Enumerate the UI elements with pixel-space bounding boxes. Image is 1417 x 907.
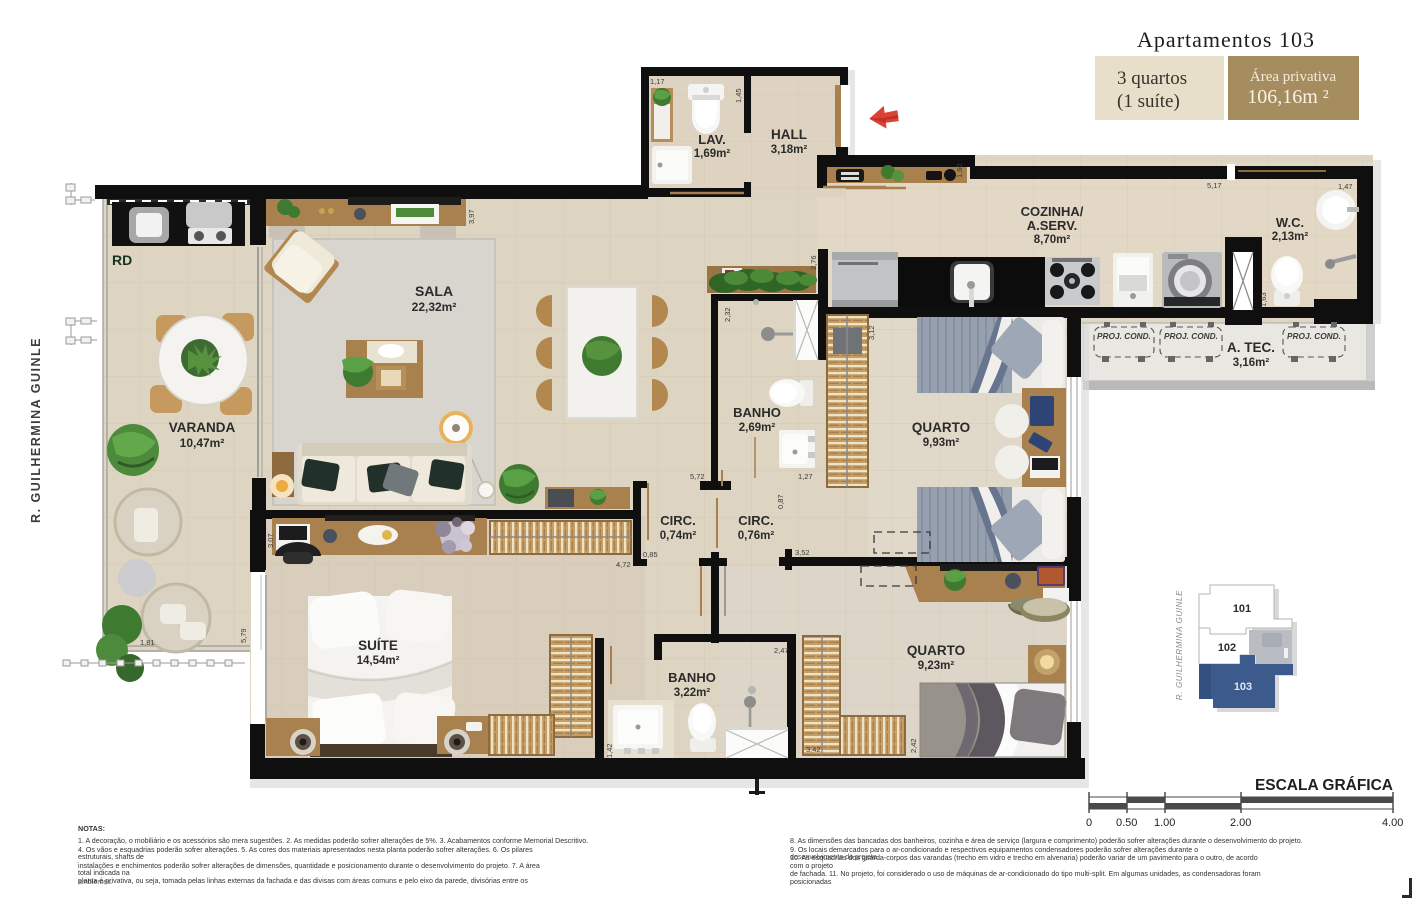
svg-text:LAV.: LAV. — [698, 132, 725, 147]
svg-text:2.00: 2.00 — [1230, 817, 1251, 829]
svg-text:QUARTO: QUARTO — [912, 420, 970, 435]
svg-text:COZINHA/: COZINHA/ — [1021, 204, 1084, 219]
svg-text:101: 101 — [1233, 603, 1251, 615]
svg-text:0,85: 0,85 — [643, 550, 658, 559]
svg-text:3,22m²: 3,22m² — [674, 687, 711, 699]
svg-text:posicionadas: posicionadas — [790, 878, 832, 886]
svg-text:1,69m²: 1,69m² — [694, 148, 731, 160]
svg-text:Apartamentos 103: Apartamentos 103 — [1137, 27, 1315, 52]
svg-text:VARANDA: VARANDA — [169, 420, 236, 435]
svg-text:de fachada. 11. No projeto, fo: de fachada. 11. No projeto, foi consider… — [790, 870, 1261, 878]
svg-text:9,93m²: 9,93m² — [923, 437, 960, 449]
svg-text:0,74m²: 0,74m² — [660, 530, 697, 542]
svg-text:R. GUILHERMINA GUINLE: R. GUILHERMINA GUINLE — [1175, 590, 1184, 700]
svg-text:1,27: 1,27 — [798, 472, 813, 481]
svg-text:103: 103 — [1234, 681, 1252, 693]
svg-text:0.50: 0.50 — [1116, 817, 1137, 829]
svg-text:0: 0 — [1086, 817, 1092, 829]
svg-text:total indicada na: total indicada na — [78, 869, 130, 877]
svg-text:CIRC.: CIRC. — [738, 513, 773, 528]
svg-text:3,42: 3,42 — [806, 745, 821, 754]
svg-text:estruturais, shafts de: estruturais, shafts de — [78, 853, 144, 861]
svg-text:0,87: 0,87 — [776, 494, 785, 509]
svg-text:HALL: HALL — [771, 127, 807, 142]
svg-text:PROJ. COND.: PROJ. COND. — [1287, 331, 1341, 341]
svg-text:W.C.: W.C. — [1276, 215, 1304, 230]
svg-text:5,17: 5,17 — [1207, 181, 1222, 190]
svg-text:ambientes.: ambientes. — [78, 878, 113, 886]
svg-text:1,63: 1,63 — [1259, 292, 1268, 307]
svg-text:QUARTO: QUARTO — [907, 643, 965, 658]
svg-text:1,17: 1,17 — [650, 77, 665, 86]
svg-text:3,12: 3,12 — [867, 325, 876, 340]
svg-text:1,60: 1,60 — [955, 163, 964, 178]
svg-text:PROJ. COND.: PROJ. COND. — [1097, 331, 1151, 341]
svg-text:1. A decoração, o mobiliário e: 1. A decoração, o mobiliário e os acessó… — [78, 837, 588, 845]
svg-text:1,45: 1,45 — [734, 88, 743, 103]
svg-text:R. GUILHERMINA GUINLE: R. GUILHERMINA GUINLE — [29, 337, 43, 523]
svg-text:SUÍTE: SUÍTE — [358, 638, 398, 653]
svg-text:2,13m²: 2,13m² — [1272, 231, 1309, 243]
svg-text:BANHO: BANHO — [733, 405, 781, 420]
svg-text:BANHO: BANHO — [668, 670, 716, 685]
svg-text:3 quartos: 3 quartos — [1117, 68, 1187, 89]
svg-text:Área privativa: Área privativa — [1250, 68, 1337, 85]
svg-text:(1 suíte): (1 suíte) — [1117, 91, 1180, 112]
svg-text:desenvolvimento do projeto.: desenvolvimento do projeto. — [790, 853, 879, 861]
svg-text:8. As dimensões das bancadas d: 8. As dimensões das bancadas dos banheir… — [790, 837, 1303, 845]
svg-text:planta é privativa, ou seja, t: planta é privativa, ou seja, tomada pela… — [78, 877, 528, 885]
svg-text:2,47: 2,47 — [774, 646, 789, 655]
svg-text:2,32: 2,32 — [723, 307, 732, 322]
svg-text:PROJ. COND.: PROJ. COND. — [1164, 331, 1218, 341]
svg-text:1,42: 1,42 — [605, 743, 614, 758]
svg-text:102: 102 — [1218, 642, 1236, 654]
svg-text:A. TEC.: A. TEC. — [1227, 340, 1275, 355]
svg-text:4,72: 4,72 — [616, 560, 631, 569]
svg-text:CIRC.: CIRC. — [660, 513, 695, 528]
svg-text:8,70m²: 8,70m² — [1034, 234, 1071, 246]
svg-text:RD: RD — [112, 252, 132, 268]
svg-text:3,97: 3,97 — [467, 209, 476, 224]
svg-text:14,54m²: 14,54m² — [357, 655, 400, 667]
svg-text:5,79: 5,79 — [239, 628, 248, 643]
svg-text:2,69m²: 2,69m² — [739, 422, 776, 434]
svg-text:3,18m²: 3,18m² — [771, 144, 808, 156]
svg-text:22,32m²: 22,32m² — [412, 300, 457, 314]
svg-text:4. Os vãos e esquadrias poderã: 4. Os vãos e esquadrias poderão sofrer a… — [78, 846, 533, 854]
svg-text:1.00: 1.00 — [1154, 817, 1175, 829]
svg-text:A.SERV.: A.SERV. — [1027, 218, 1078, 233]
svg-text:106,16m ²: 106,16m ² — [1247, 86, 1329, 108]
svg-text:2,76: 2,76 — [809, 255, 818, 270]
svg-text:4.00: 4.00 — [1382, 817, 1403, 829]
svg-text:9,23m²: 9,23m² — [918, 660, 955, 672]
svg-text:3,07: 3,07 — [266, 533, 275, 548]
svg-text:ESCALA GRÁFICA: ESCALA GRÁFICA — [1255, 777, 1393, 794]
svg-text:SALA: SALA — [415, 283, 453, 299]
svg-text:3,52: 3,52 — [795, 548, 810, 557]
svg-text:3,16m²: 3,16m² — [1233, 357, 1270, 369]
svg-text:5,72: 5,72 — [690, 472, 705, 481]
svg-text:NOTAS:: NOTAS: — [78, 824, 105, 833]
svg-text:0,76m²: 0,76m² — [738, 530, 775, 542]
svg-text:2,42: 2,42 — [909, 738, 918, 753]
svg-text:1,47: 1,47 — [1338, 182, 1353, 191]
svg-text:com o projeto: com o projeto — [790, 862, 833, 870]
svg-text:10,47m²: 10,47m² — [180, 436, 225, 450]
svg-text:1,81: 1,81 — [140, 638, 155, 647]
svg-text:instalações e enchimentos pode: instalações e enchimentos poderão sofrer… — [78, 862, 540, 870]
